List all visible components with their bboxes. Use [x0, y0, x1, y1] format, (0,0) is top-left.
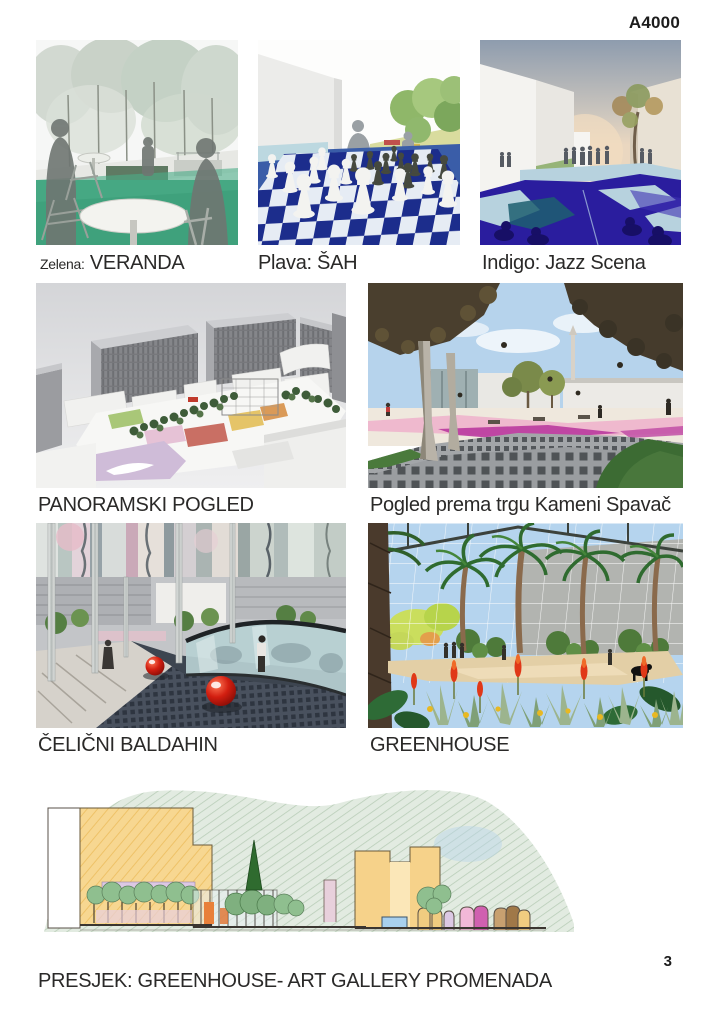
baldahin-image	[36, 523, 346, 728]
jazz-image	[480, 40, 681, 245]
caption-veranda: Zelena: VERANDA	[40, 252, 184, 275]
panorama-image	[36, 283, 346, 488]
chess-image	[258, 40, 460, 245]
caption-veranda-main: VERANDA	[90, 252, 185, 274]
veranda-image	[36, 40, 238, 245]
caption-baldahin: ČELIČNI BALDAHIN	[38, 734, 218, 757]
trg-image	[368, 283, 683, 488]
caption-presjek: PRESJEK: GREENHOUSE- ART GALLERY PROMENA…	[38, 970, 552, 993]
page-number: 3	[664, 953, 672, 970]
caption-trg: Pogled prema trgu Kameni Spavač	[370, 494, 671, 517]
portfolio-page: A4000	[0, 0, 717, 1024]
caption-veranda-prefix: Zelena:	[40, 256, 85, 272]
caption-jazz: Indigo: Jazz Scena	[482, 252, 646, 275]
section-sketch	[36, 782, 596, 954]
sheet-code: A4000	[629, 13, 680, 33]
greenhouse-image	[368, 523, 683, 728]
caption-sah: Plava: ŠAH	[258, 252, 357, 275]
caption-greenhouse: GREENHOUSE	[370, 734, 509, 757]
caption-panorama: PANORAMSKI POGLED	[38, 494, 254, 517]
